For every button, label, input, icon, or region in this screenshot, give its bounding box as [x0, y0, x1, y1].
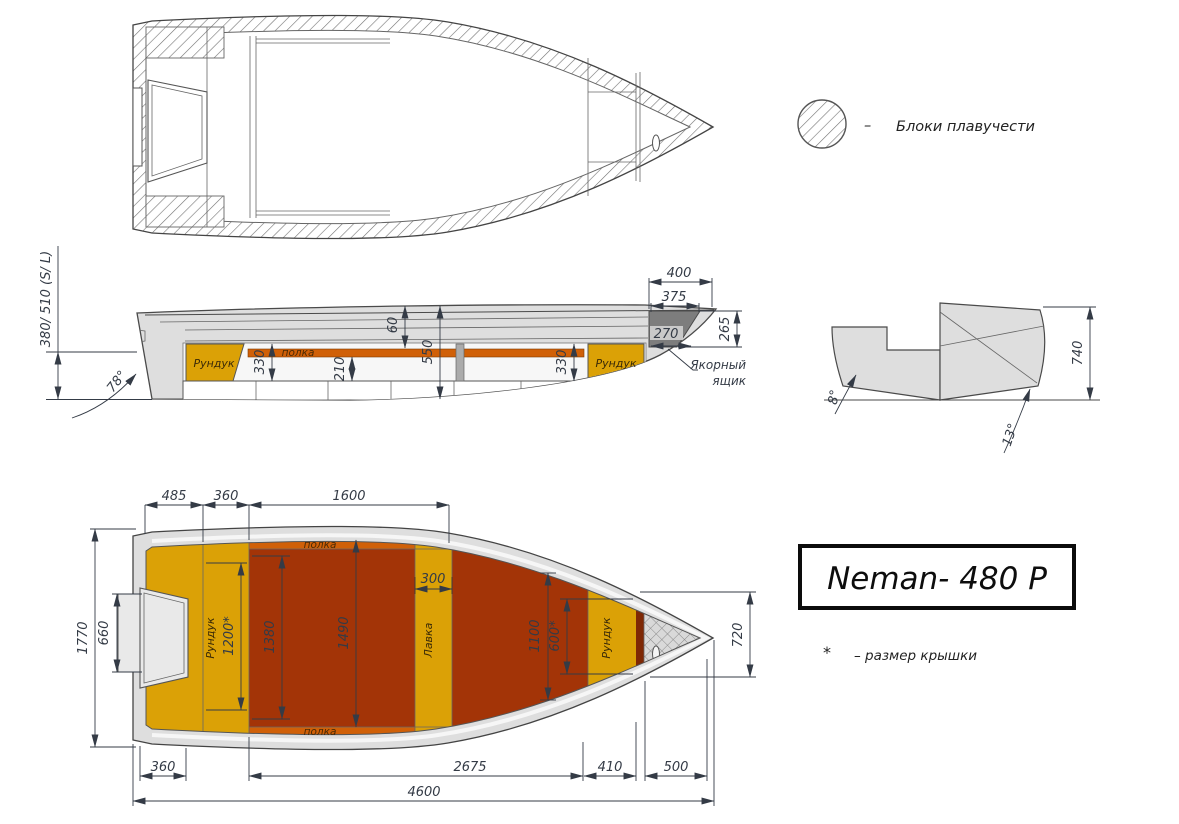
- dim-330-left: 330: [253, 350, 268, 375]
- transom-notch: [133, 88, 142, 166]
- footnote: * – размер крышки: [823, 643, 977, 664]
- dim-360-bottom: 360: [151, 760, 176, 775]
- dim-375: 375: [662, 290, 687, 305]
- plan-transom-notch: [118, 594, 140, 672]
- buoyancy-symbol-icon: [798, 100, 846, 148]
- plan-bench-label: Лавка: [422, 622, 435, 658]
- dim-330-right: 330: [555, 350, 570, 375]
- dim-4600: 4600: [407, 785, 440, 800]
- plan-shelf-bottom-label: полка: [304, 726, 337, 738]
- dim-angle-13: 13°: [1000, 422, 1021, 449]
- dim-1380: 1380: [263, 620, 278, 653]
- plan-motor-cutout: [140, 588, 188, 688]
- bow-handle: [653, 135, 660, 151]
- dim-360-top: 360: [214, 489, 239, 504]
- dim-2675: 2675: [453, 760, 486, 775]
- dim-400: 400: [667, 266, 692, 281]
- footnote-text: – размер крышки: [854, 648, 977, 664]
- dim-1100: 1100: [528, 619, 543, 652]
- top-view-cockpit-inner: [146, 30, 690, 223]
- legend-label: Блоки плавучести: [896, 119, 1035, 135]
- section-view: 740 8° 13°: [824, 303, 1100, 453]
- plan-view: полка полка Рундук Лавка Рундук 485 360 …: [76, 489, 756, 806]
- dim-stern-height: 380/ 510 (S/ L): [39, 251, 54, 347]
- dim-300: 300: [421, 572, 446, 587]
- dim-660: 660: [97, 621, 112, 646]
- legend-dash: –: [864, 118, 871, 134]
- dim-1200: 1200*: [222, 616, 237, 656]
- side-view: Рундук Рундук полка 380/ 510 (S/ L) 78° …: [39, 246, 747, 418]
- drawing-svg: Рундук Рундук полка 380/ 510 (S/ L) 78° …: [0, 0, 1179, 824]
- buoyancy-block-stern-top: [146, 27, 224, 58]
- dim-transom-angle: 78°: [104, 368, 130, 395]
- plan-shelf-top-label: полка: [304, 539, 337, 551]
- dim-720: 720: [731, 623, 746, 648]
- plan-locker-aft-label: Рундук: [204, 617, 217, 658]
- footnote-marker: *: [823, 643, 831, 662]
- dim-1600: 1600: [332, 489, 365, 504]
- locker-right-label: Рундук: [595, 357, 636, 370]
- dim-angle-8: 8°: [826, 388, 844, 406]
- mid-bulkhead: [456, 344, 464, 381]
- boat-drawing-sheet: Рундук Рундук полка 380/ 510 (S/ L) 78° …: [0, 0, 1179, 824]
- dim-60: 60: [386, 317, 401, 334]
- floor-blocks: [183, 381, 652, 400]
- legend: – Блоки плавучести: [798, 100, 1035, 148]
- dim-500: 500: [664, 760, 689, 775]
- dim-1770: 1770: [76, 621, 91, 654]
- shelf-label: полка: [282, 347, 315, 359]
- top-view: [133, 15, 713, 238]
- title-box: Neman- 480 P: [800, 546, 1074, 608]
- dim-550: 550: [421, 340, 436, 365]
- dim-485: 485: [162, 489, 187, 504]
- locker-left-label: Рундук: [193, 357, 234, 370]
- bow-sliver: [636, 530, 644, 746]
- buoyancy-block-stern-bottom: [146, 196, 224, 227]
- section-midship-half: [940, 303, 1045, 400]
- dim-600: 600*: [548, 620, 563, 652]
- dim-270: 270: [654, 327, 679, 342]
- dim-210: 210: [333, 357, 348, 382]
- dim-265: 265: [718, 317, 733, 342]
- plan-locker-bow-label: Рундук: [600, 617, 613, 658]
- anchor-box-label-2: ящик: [712, 374, 746, 388]
- dim-410: 410: [598, 760, 623, 775]
- anchor-box-label-1: Якорный: [689, 358, 746, 372]
- dim-740: 740: [1071, 341, 1086, 366]
- model-name: Neman- 480 P: [827, 561, 1047, 597]
- dim-1490: 1490: [337, 616, 352, 649]
